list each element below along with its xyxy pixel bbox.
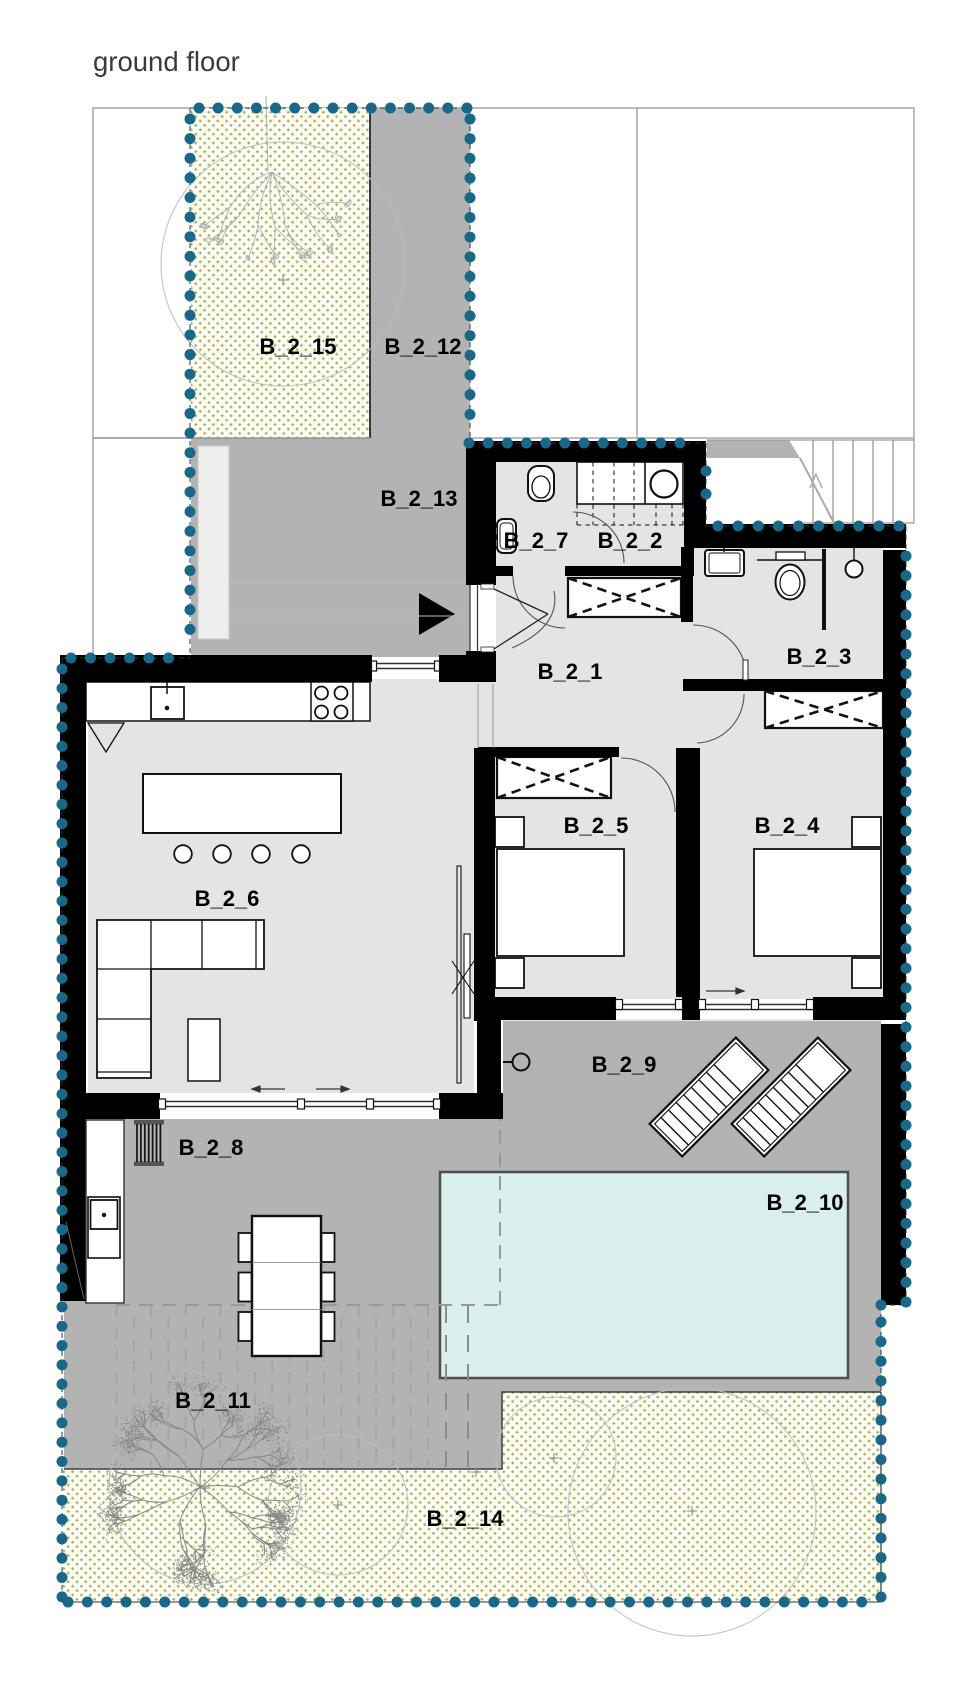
svg-text:B_2_8: B_2_8 bbox=[179, 1135, 244, 1160]
svg-text:B_2_1: B_2_1 bbox=[538, 659, 603, 684]
svg-text:B_2_6: B_2_6 bbox=[195, 886, 260, 911]
svg-text:B_2_4: B_2_4 bbox=[755, 813, 821, 838]
svg-text:B_2_5: B_2_5 bbox=[564, 813, 629, 838]
svg-text:B_2_13: B_2_13 bbox=[380, 486, 457, 511]
svg-text:B_2_7: B_2_7 bbox=[504, 528, 569, 553]
svg-text:B_2_10: B_2_10 bbox=[766, 1190, 843, 1215]
svg-text:B_2_2: B_2_2 bbox=[598, 528, 663, 553]
svg-text:B_2_9: B_2_9 bbox=[592, 1052, 657, 1077]
svg-text:B_2_15: B_2_15 bbox=[259, 334, 336, 359]
svg-text:B_2_12: B_2_12 bbox=[384, 334, 461, 359]
svg-text:B_2_3: B_2_3 bbox=[787, 644, 852, 669]
svg-text:B_2_14: B_2_14 bbox=[426, 1506, 504, 1531]
svg-text:ground floor: ground floor bbox=[93, 46, 240, 77]
svg-text:B_2_11: B_2_11 bbox=[175, 1388, 251, 1413]
